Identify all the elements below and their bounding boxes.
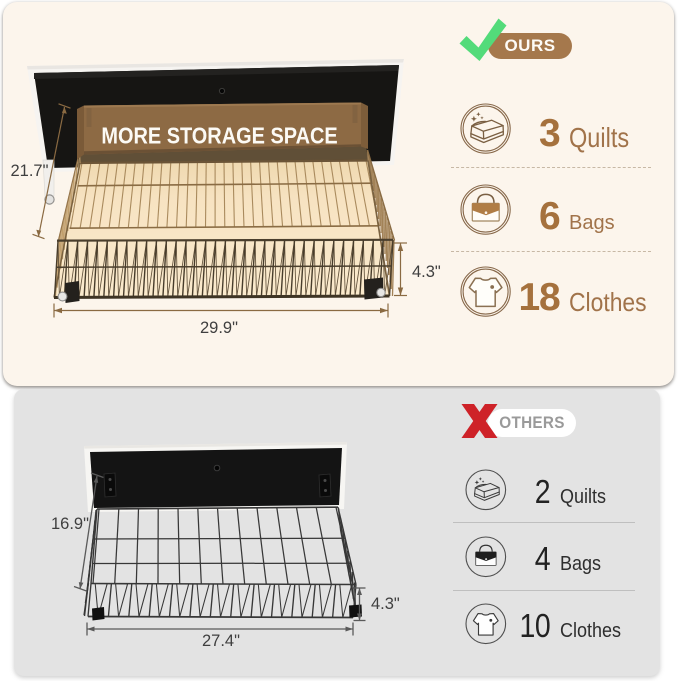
svg-text:27.4": 27.4" (202, 632, 240, 650)
svg-text:29.9": 29.9" (200, 319, 238, 337)
svg-text:16.9": 16.9" (51, 515, 89, 533)
svg-text:MORE STORAGE SPACE: MORE STORAGE SPACE (101, 123, 337, 148)
svg-text:4.3": 4.3" (371, 595, 400, 613)
svg-text:21.7": 21.7" (11, 162, 49, 180)
svg-text:4.3": 4.3" (412, 263, 441, 281)
